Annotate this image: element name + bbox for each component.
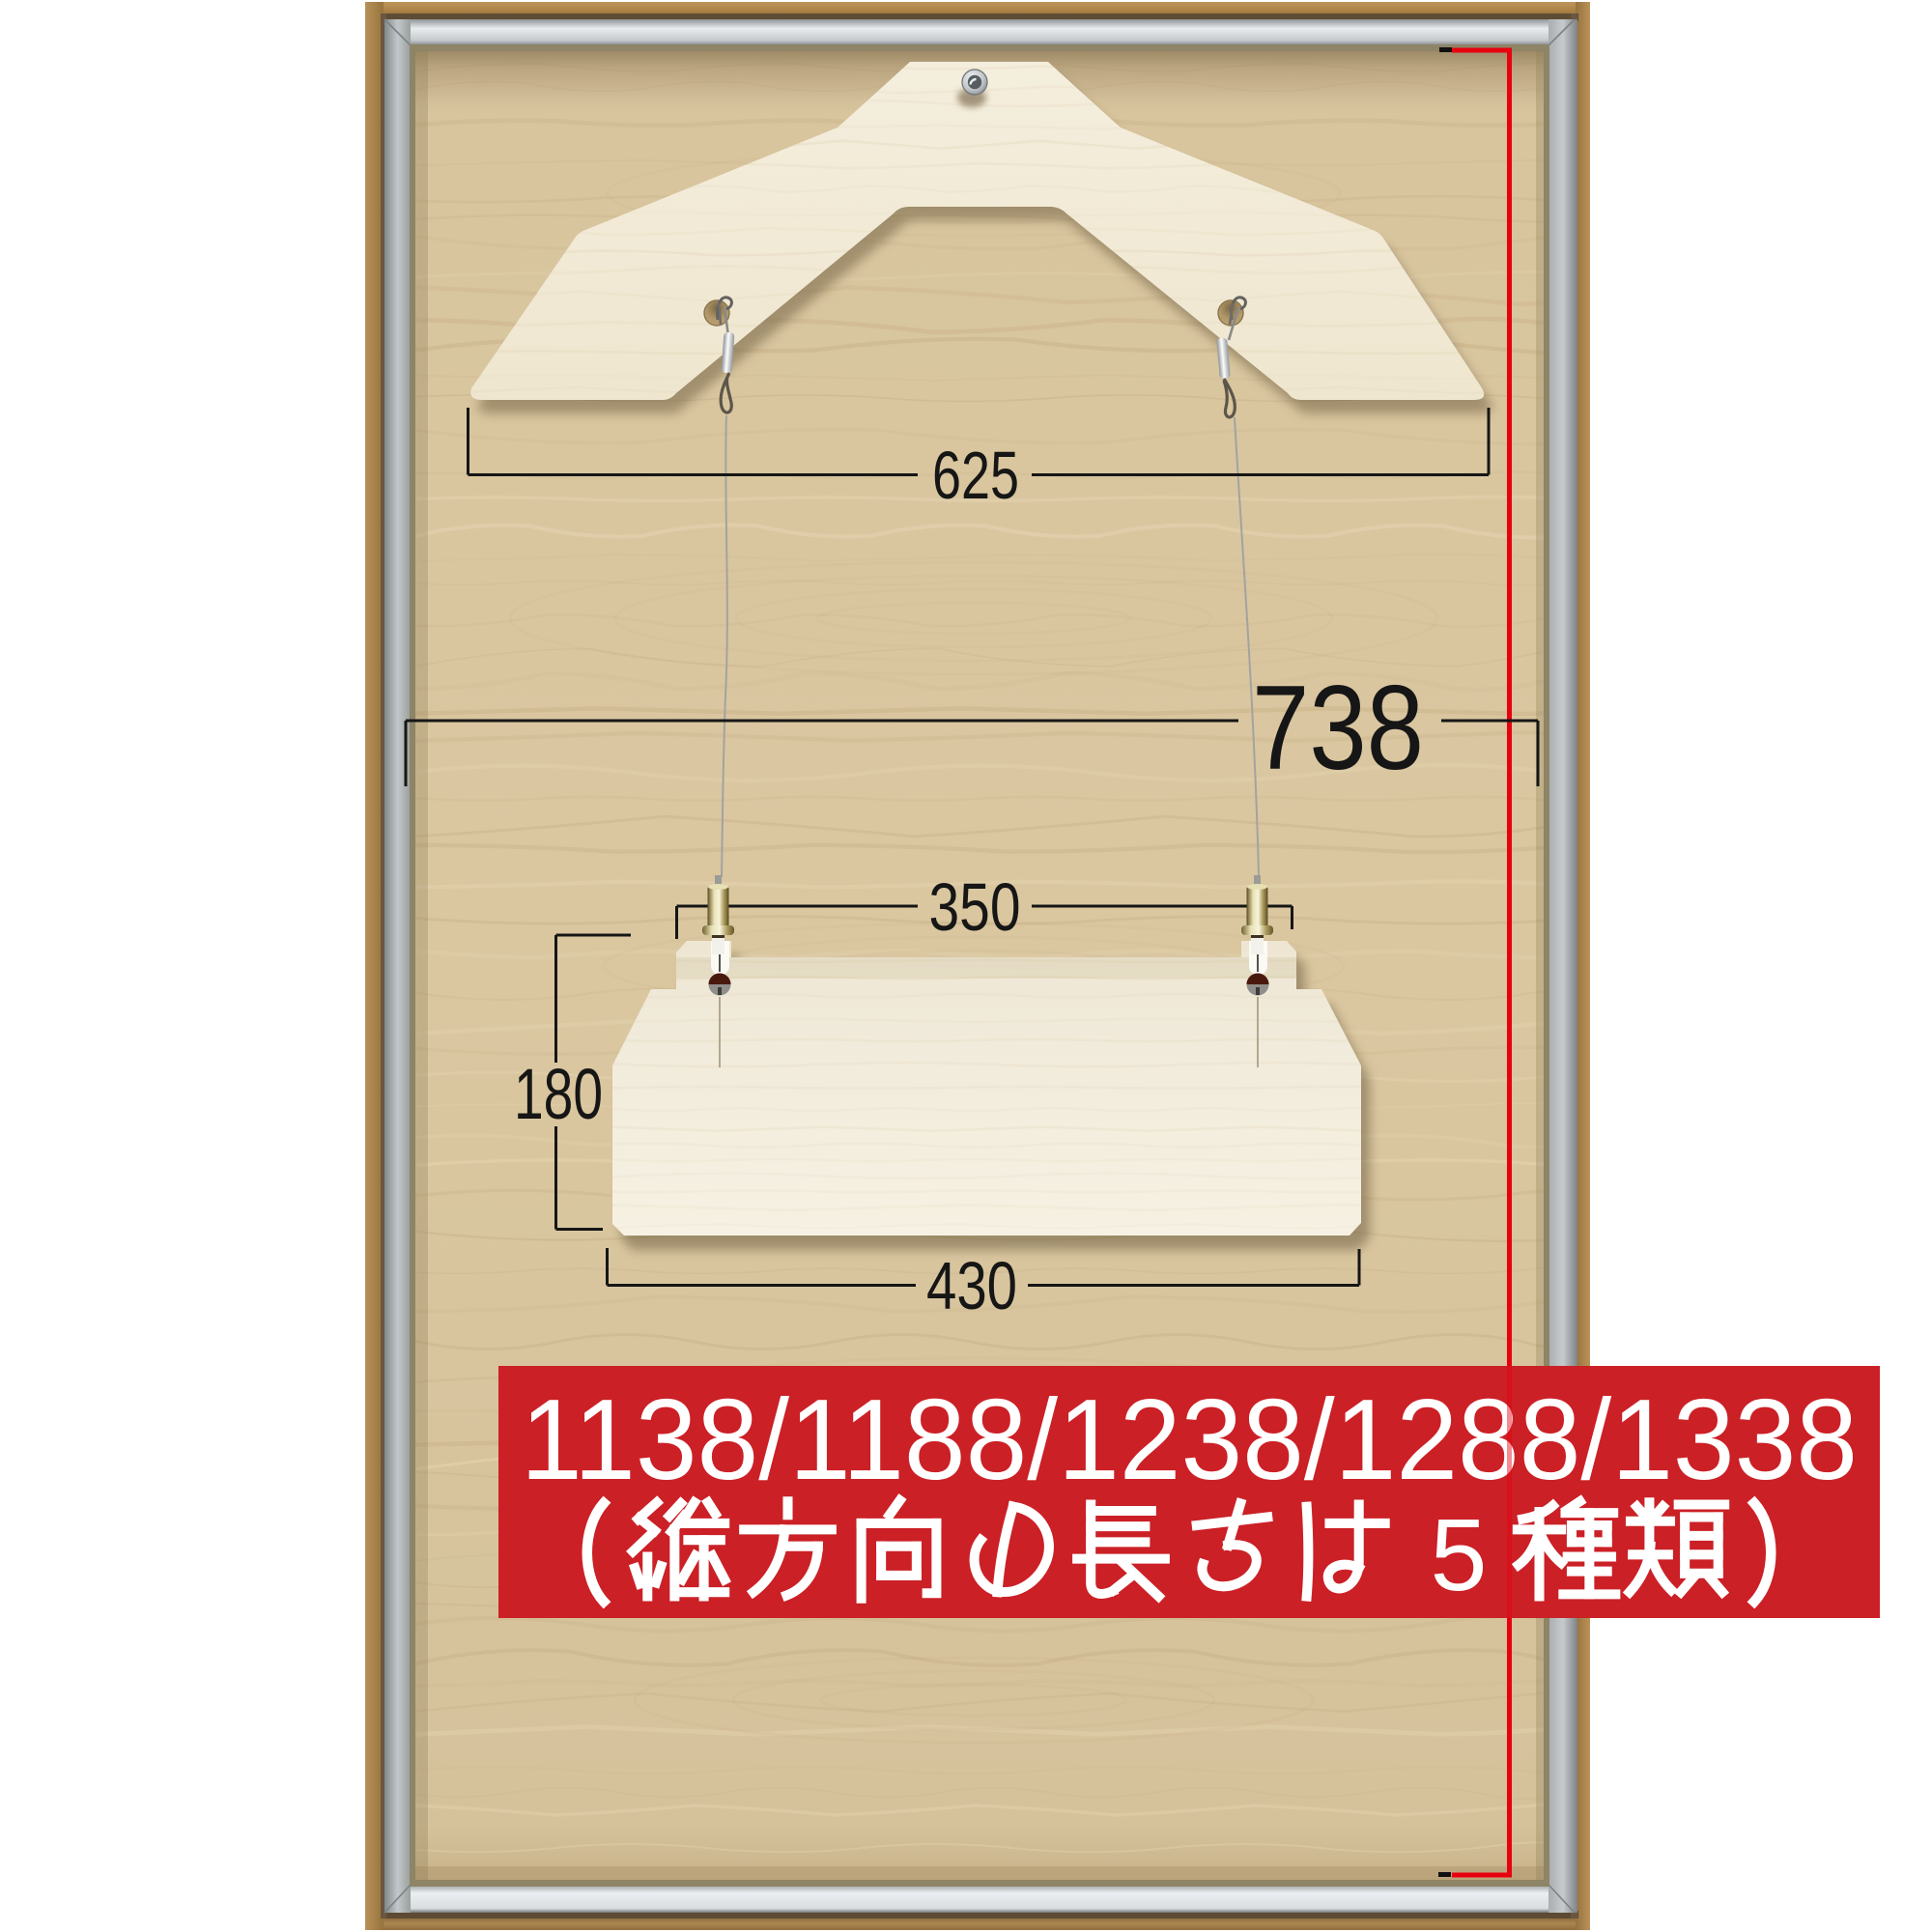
svg-text:738: 738	[1252, 662, 1424, 795]
svg-text:180: 180	[514, 1054, 603, 1134]
svg-text:350: 350	[929, 869, 1021, 945]
svg-text:430: 430	[926, 1248, 1017, 1323]
svg-text:1138/1188/1238/1288/1338: 1138/1188/1238/1288/1338	[521, 1376, 1858, 1504]
svg-text:5: 5	[1431, 1498, 1488, 1612]
svg-text:625: 625	[932, 438, 1019, 513]
